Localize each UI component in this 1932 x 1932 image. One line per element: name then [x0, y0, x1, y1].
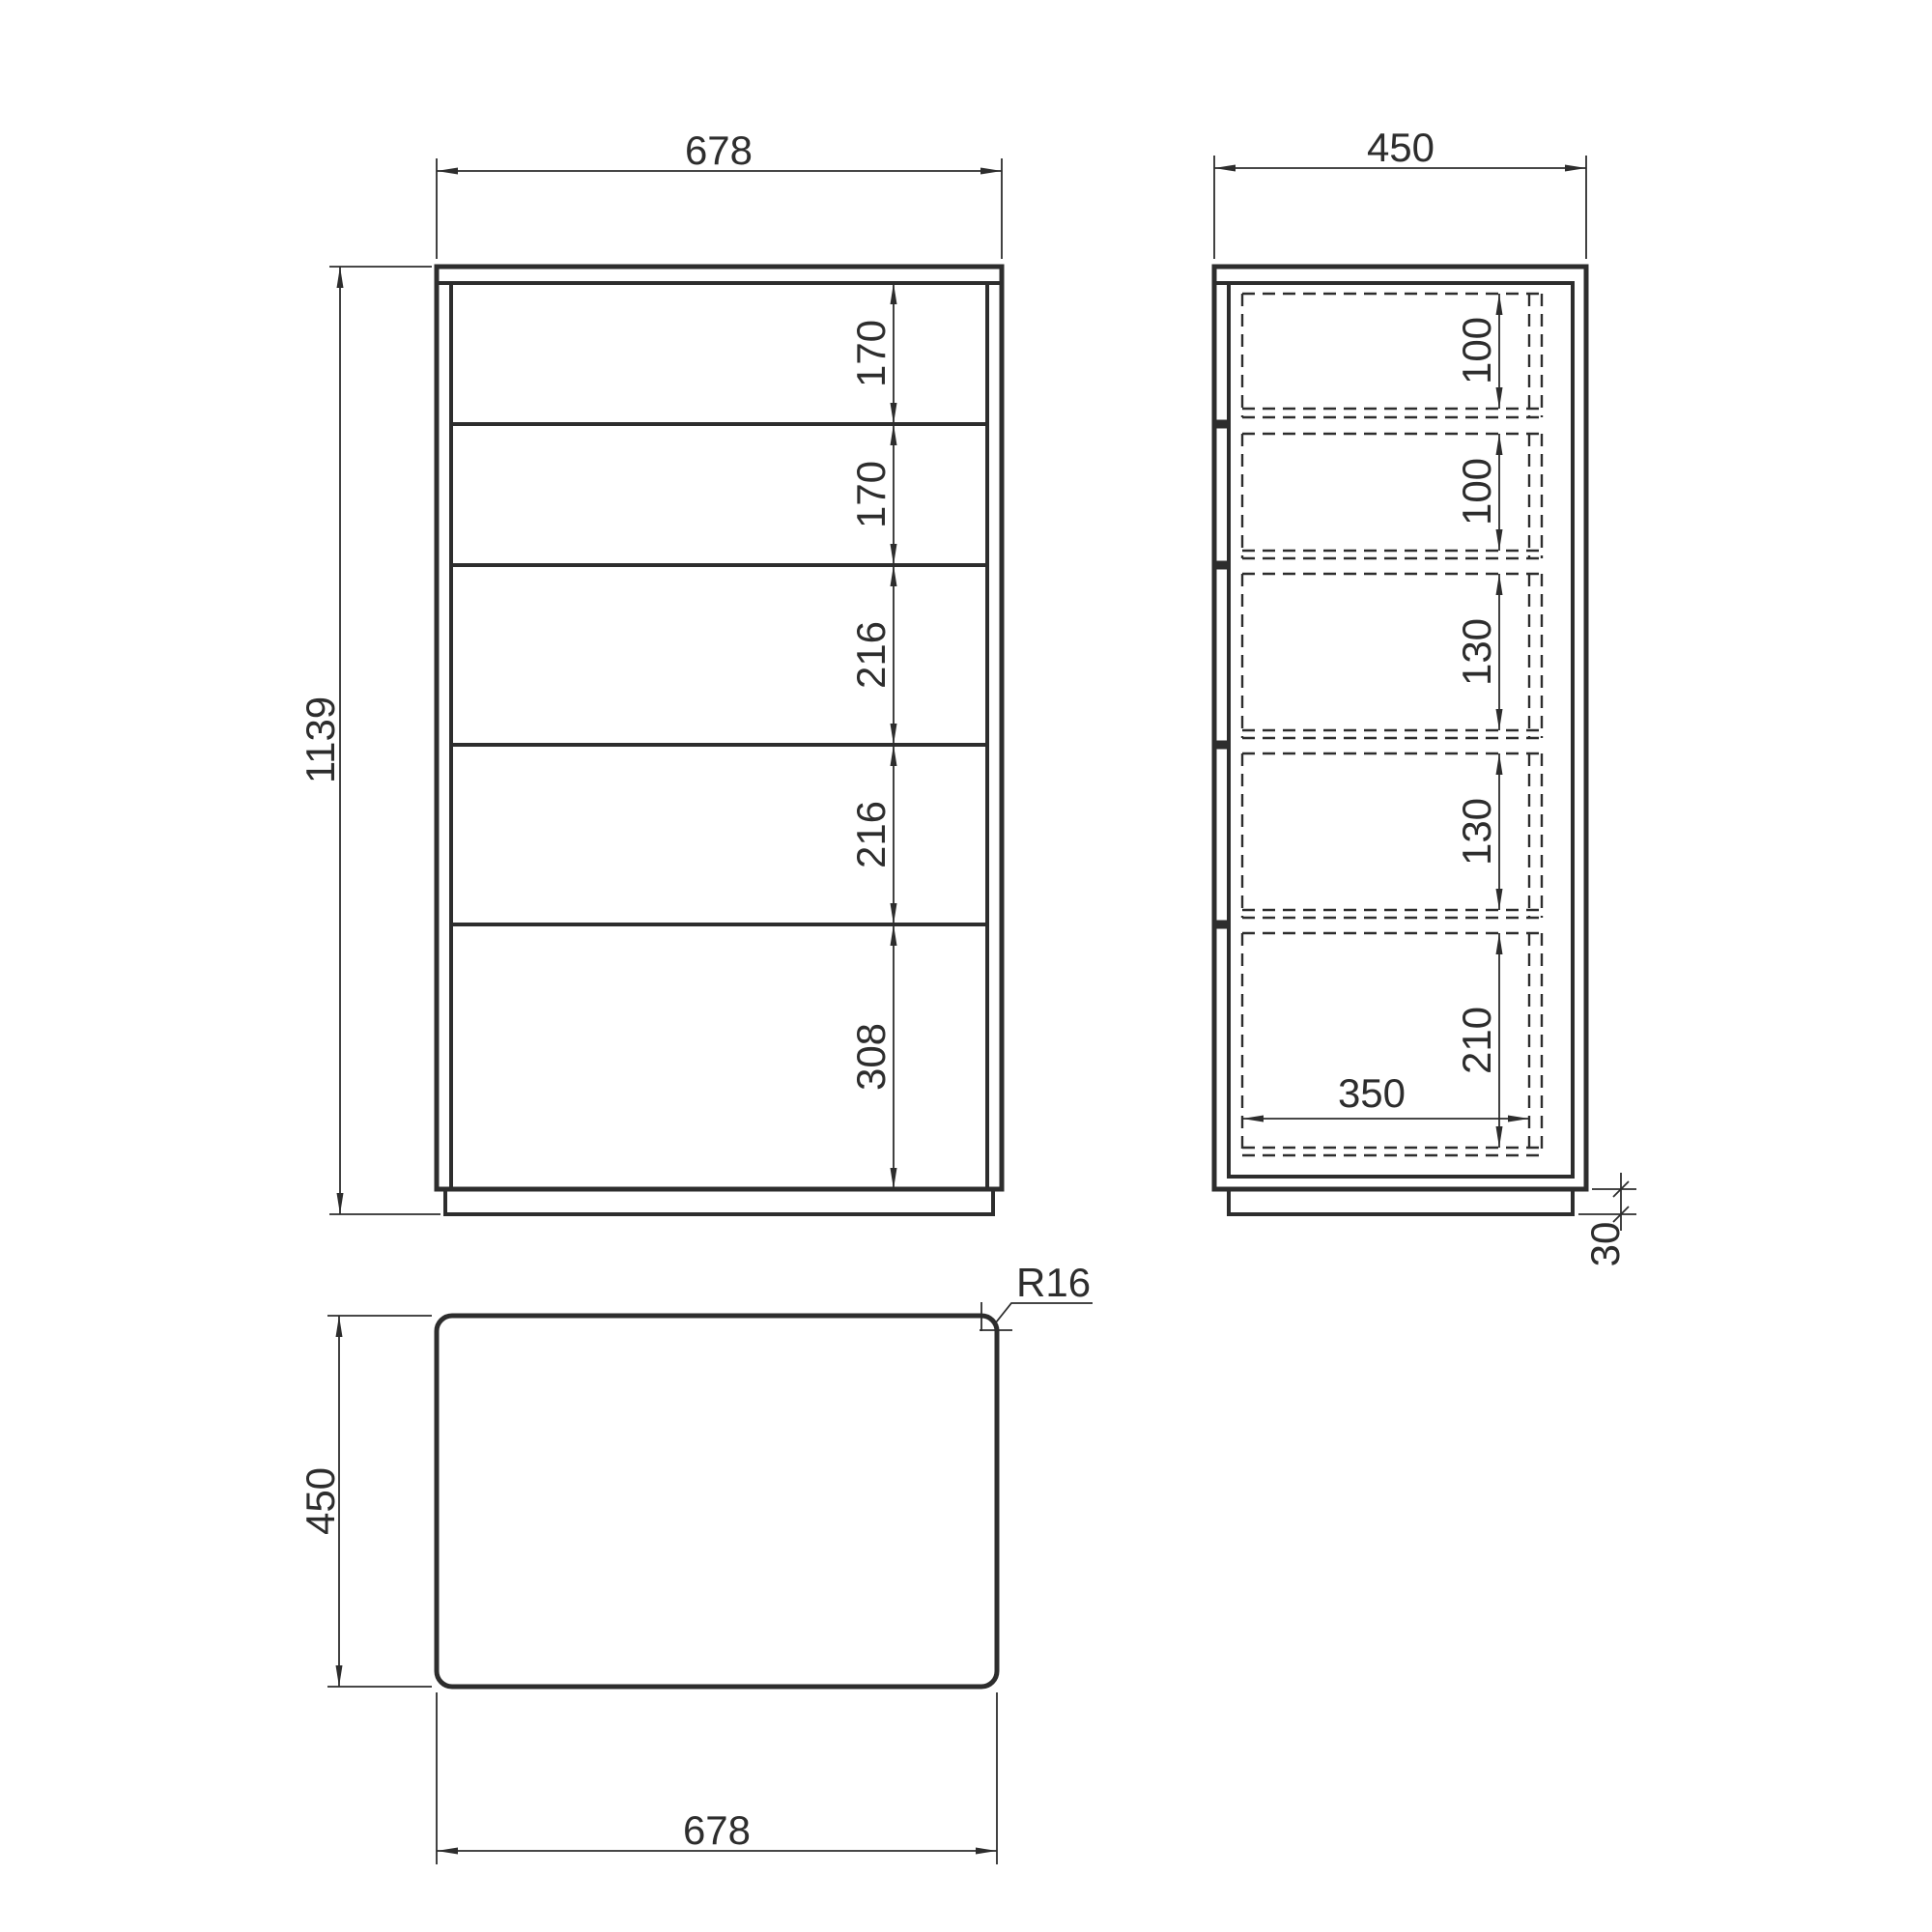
arrowhead	[1496, 933, 1503, 954]
arrowhead	[337, 267, 344, 288]
side-carcass-outline	[1214, 267, 1586, 1189]
dim-label-side-depth: 450	[1367, 125, 1435, 170]
front-drawer-height-dimensions: 170 170 216 216 308	[848, 283, 897, 1189]
arrowhead	[437, 1848, 458, 1855]
drawer-front-gap	[1212, 420, 1231, 429]
arrowhead	[1496, 574, 1503, 595]
radius-leader-line	[996, 1303, 1093, 1322]
arrowhead	[1565, 165, 1586, 172]
dim-label-drawer-4: 216	[848, 801, 894, 868]
dim-label-drawer-2: 170	[848, 461, 894, 528]
technical-drawing-canvas: 678 1139 170 170 216 216 308	[0, 0, 1932, 1932]
arrowhead	[1496, 889, 1503, 910]
arrowhead	[337, 1193, 344, 1214]
arrowhead	[1214, 165, 1236, 172]
top-depth-dimension: 450	[298, 1316, 432, 1687]
arrowhead	[1496, 753, 1503, 775]
front-carcass-outline	[437, 267, 1002, 1189]
arrowhead	[891, 283, 897, 304]
drawer-front-gap	[1212, 921, 1231, 929]
arrowhead	[1496, 434, 1503, 455]
top-width-dimension: 678	[437, 1692, 997, 1864]
dim-label-corner-radius: R16	[1016, 1260, 1091, 1305]
dim-label-top-width: 678	[683, 1807, 751, 1853]
arrowhead	[1496, 709, 1503, 730]
dim-label-drawer-3: 216	[848, 621, 894, 689]
arrowhead	[1496, 1126, 1503, 1148]
arrowhead	[891, 424, 897, 445]
dim-label-drawer-inner-5: 210	[1454, 1007, 1499, 1074]
dim-label-drawer-inner-3: 130	[1454, 618, 1499, 686]
top-view: 450 678 R16	[298, 1260, 1093, 1864]
arrowhead	[1496, 294, 1503, 315]
side-plinth-outline	[1229, 1189, 1573, 1214]
arrowhead	[891, 745, 897, 766]
arrowhead	[1242, 1116, 1264, 1122]
arrowhead	[976, 1848, 997, 1855]
side-depth-dimension: 450	[1214, 125, 1586, 259]
arrowhead	[1496, 529, 1503, 551]
dim-label-drawer-5: 308	[848, 1023, 894, 1091]
dim-label-drawer-inner-2: 100	[1454, 458, 1499, 526]
drawer-front-gap	[1212, 561, 1231, 570]
arrowhead	[891, 903, 897, 924]
side-drawer-depth-dimension: 350	[1242, 1070, 1529, 1122]
arrowhead	[1508, 1116, 1529, 1122]
side-drawer-inner-dimensions: 100 100 130 130 210	[1454, 294, 1503, 1148]
dim-label-plinth-height: 30	[1582, 1222, 1628, 1267]
arrowhead	[891, 544, 897, 565]
arrowhead	[891, 924, 897, 946]
corner-radius-annotation: R16	[980, 1260, 1093, 1331]
drawing-sheet: 678 1139 170 170 216 216 308	[0, 0, 1932, 1932]
drawer-front-gap	[1212, 741, 1231, 750]
dim-label-top-depth: 450	[298, 1467, 343, 1535]
arrowhead	[336, 1316, 343, 1337]
front-plinth-outline	[445, 1189, 993, 1214]
arrowhead	[891, 403, 897, 424]
front-width-dimension: 678	[437, 128, 1002, 259]
front-view-outline	[437, 267, 1002, 1214]
dim-label-drawer-inner-4: 130	[1454, 798, 1499, 866]
dim-label-drawer-inner-1: 100	[1454, 317, 1499, 384]
arrowhead	[980, 168, 1002, 175]
side-view: 450 100 100 130 130 210	[1212, 125, 1636, 1266]
arrowhead	[891, 1168, 897, 1189]
dim-label-front-height: 1139	[298, 696, 343, 783]
dim-label-front-width: 678	[685, 128, 753, 173]
arrowhead	[1496, 387, 1503, 409]
dim-label-drawer-1: 170	[848, 320, 894, 387]
top-view-outline	[437, 1316, 997, 1687]
arrowhead	[891, 724, 897, 745]
front-height-dimension: 1139	[298, 267, 440, 1214]
dim-label-drawer-depth: 350	[1338, 1070, 1406, 1116]
arrowhead	[891, 565, 897, 586]
arrowhead	[336, 1665, 343, 1687]
arrowhead	[437, 168, 458, 175]
front-view: 678 1139 170 170 216 216 308	[298, 128, 1002, 1214]
